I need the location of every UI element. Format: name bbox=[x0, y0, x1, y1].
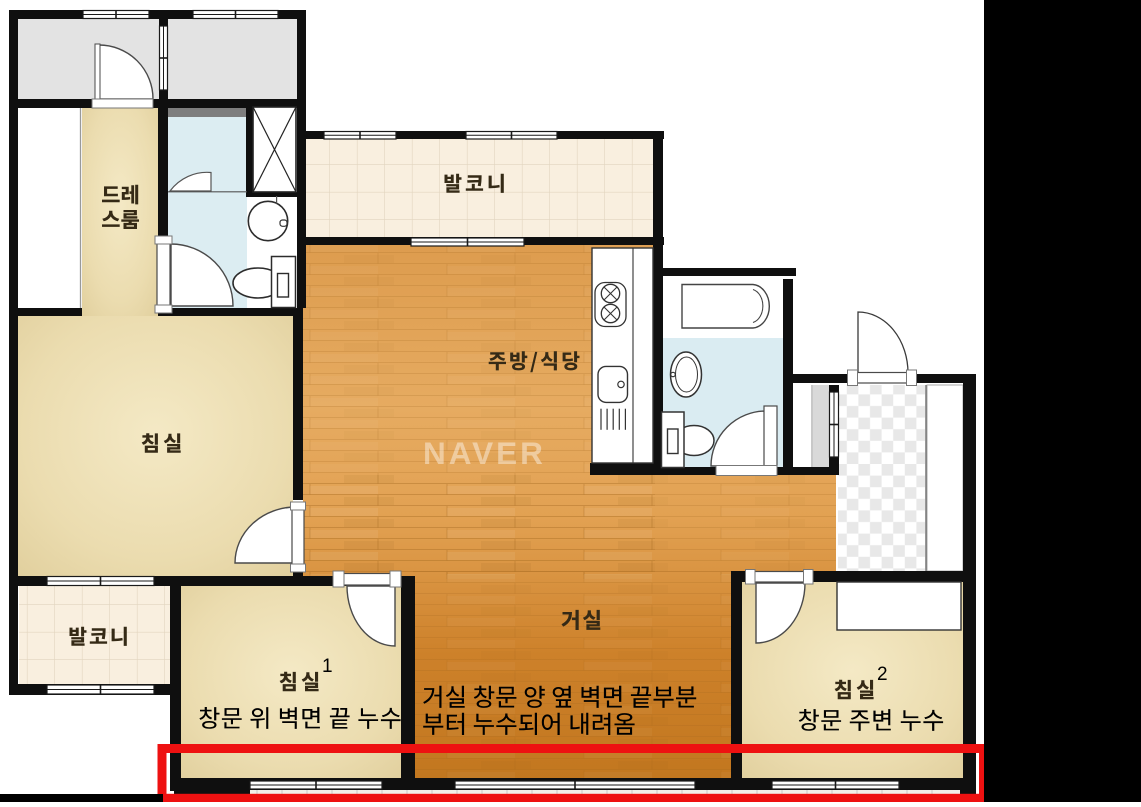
svg-text:1: 1 bbox=[322, 656, 333, 677]
svg-text:NAVER: NAVER bbox=[423, 435, 546, 471]
svg-text:2: 2 bbox=[877, 664, 888, 685]
